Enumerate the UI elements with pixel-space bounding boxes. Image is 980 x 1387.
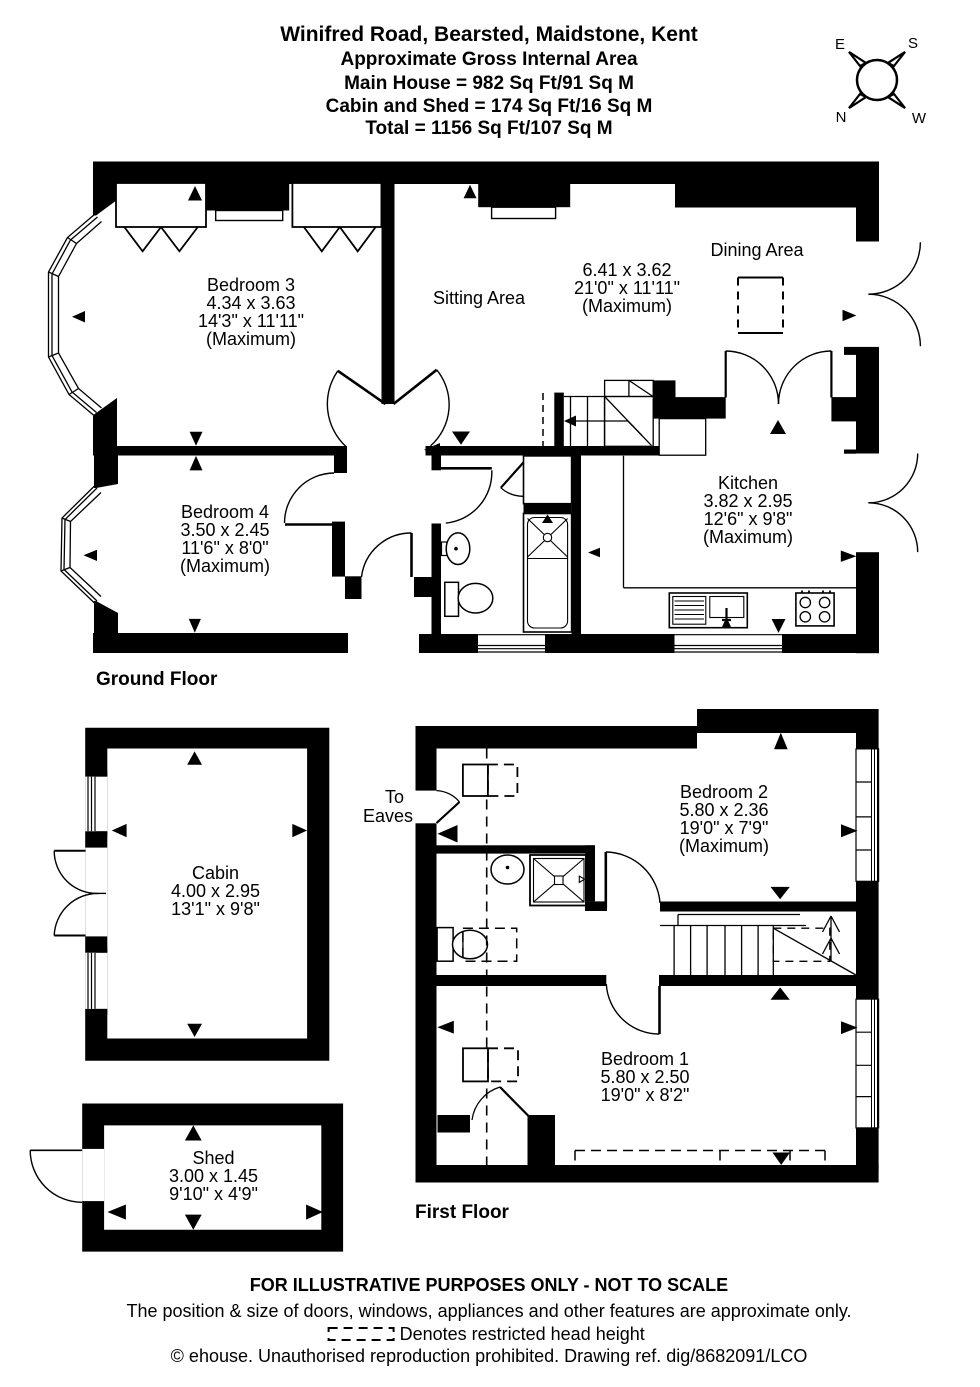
svg-text:S: S	[908, 35, 918, 52]
svg-text:13'1" x 9'8": 13'1" x 9'8"	[171, 899, 260, 919]
svg-text:6.41 x 3.62: 6.41 x 3.62	[582, 260, 671, 280]
svg-text:(Maximum): (Maximum)	[582, 296, 672, 316]
svg-text:Main House = 982 Sq Ft/91 Sq M: Main House = 982 Sq Ft/91 Sq M	[344, 73, 634, 94]
svg-text:E: E	[835, 36, 845, 53]
svg-text:12'6" x 9'8": 12'6" x 9'8"	[704, 509, 793, 529]
svg-text:Approximate Gross Internal Are: Approximate Gross Internal Area	[340, 49, 637, 70]
svg-text:4.00 x 2.95: 4.00 x 2.95	[171, 881, 260, 901]
svg-text:3.82 x 2.95: 3.82 x 2.95	[703, 491, 792, 511]
svg-text:(Maximum): (Maximum)	[679, 836, 769, 856]
svg-text:4.34 x 3.63: 4.34 x 3.63	[206, 293, 295, 313]
svg-text:Denotes restricted head height: Denotes restricted head height	[400, 1324, 645, 1344]
svg-text:3.50 x 2.45: 3.50 x 2.45	[180, 520, 269, 540]
svg-text:Winifred Road, Bearsted, Maids: Winifred Road, Bearsted, Maidstone, Kent	[280, 23, 698, 46]
svg-text:5.80 x 2.36: 5.80 x 2.36	[679, 800, 768, 820]
svg-text:21'0" x 11'11": 21'0" x 11'11"	[574, 278, 680, 298]
svg-text:N: N	[836, 109, 847, 126]
svg-text:9'10" x 4'9": 9'10" x 4'9"	[169, 1184, 258, 1204]
svg-text:First Floor: First Floor	[415, 1202, 510, 1223]
svg-text:The position & size of doors,: The position & size of doors, windows, a…	[126, 1301, 851, 1321]
svg-text:19'0" x 8'2": 19'0" x 8'2"	[601, 1085, 690, 1105]
svg-text:Bedroom 4: Bedroom 4	[181, 502, 269, 522]
svg-text:Kitchen: Kitchen	[718, 473, 778, 493]
svg-text:© ehouse. Unauthorised reprodu: © ehouse. Unauthorised reproduction proh…	[171, 1346, 808, 1366]
svg-text:14'3" x 11'11": 14'3" x 11'11"	[198, 311, 304, 331]
svg-text:Shed: Shed	[192, 1148, 234, 1168]
svg-text:Cabin: Cabin	[192, 863, 239, 883]
svg-text:5.80 x 2.50: 5.80 x 2.50	[600, 1067, 689, 1087]
svg-text:Ground Floor: Ground Floor	[96, 669, 218, 690]
svg-text:Bedroom 3: Bedroom 3	[207, 275, 295, 295]
svg-text:(Maximum): (Maximum)	[180, 556, 270, 576]
svg-text:(Maximum): (Maximum)	[703, 527, 793, 547]
svg-text:3.00 x 1.45: 3.00 x 1.45	[169, 1166, 258, 1186]
svg-text:(Maximum): (Maximum)	[206, 329, 296, 349]
svg-text:FOR ILLUSTRATIVE PURPOSES ONLY: FOR ILLUSTRATIVE PURPOSES ONLY - NOT TO …	[250, 1275, 728, 1295]
svg-text:Total = 1156 Sq Ft/107 Sq M: Total = 1156 Sq Ft/107 Sq M	[365, 118, 612, 139]
svg-text:Bedroom 2: Bedroom 2	[680, 782, 768, 802]
svg-text:Sitting Area: Sitting Area	[433, 288, 526, 308]
svg-text:11'6" x 8'0": 11'6" x 8'0"	[181, 538, 268, 558]
svg-text:To: To	[385, 787, 404, 807]
svg-text:Cabin and Shed = 174 Sq Ft/16: Cabin and Shed = 174 Sq Ft/16 Sq M	[326, 96, 653, 117]
svg-text:Eaves: Eaves	[363, 806, 413, 826]
svg-text:19'0" x 7'9": 19'0" x 7'9"	[680, 818, 769, 838]
svg-text:W: W	[912, 110, 927, 127]
svg-text:Bedroom 1: Bedroom 1	[601, 1049, 689, 1069]
svg-text:Dining Area: Dining Area	[710, 240, 804, 260]
